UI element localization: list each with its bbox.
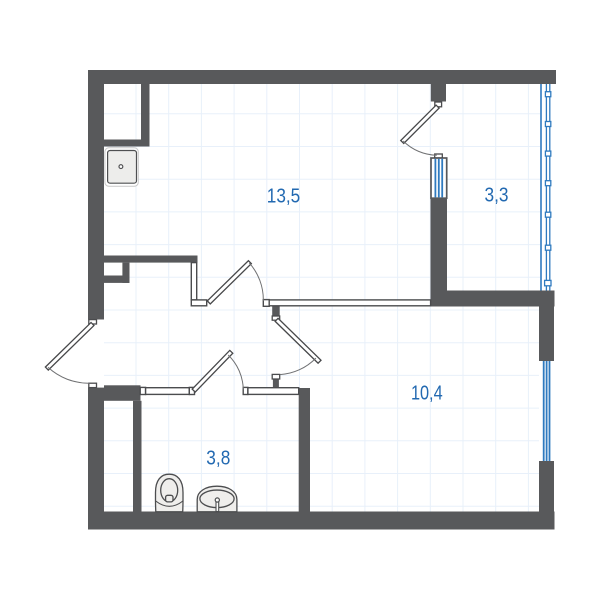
svg-text:3,3: 3,3 — [485, 184, 509, 207]
svg-text:13,5: 13,5 — [267, 184, 301, 207]
svg-text:3,8: 3,8 — [206, 446, 230, 469]
svg-text:10,4: 10,4 — [411, 381, 443, 404]
